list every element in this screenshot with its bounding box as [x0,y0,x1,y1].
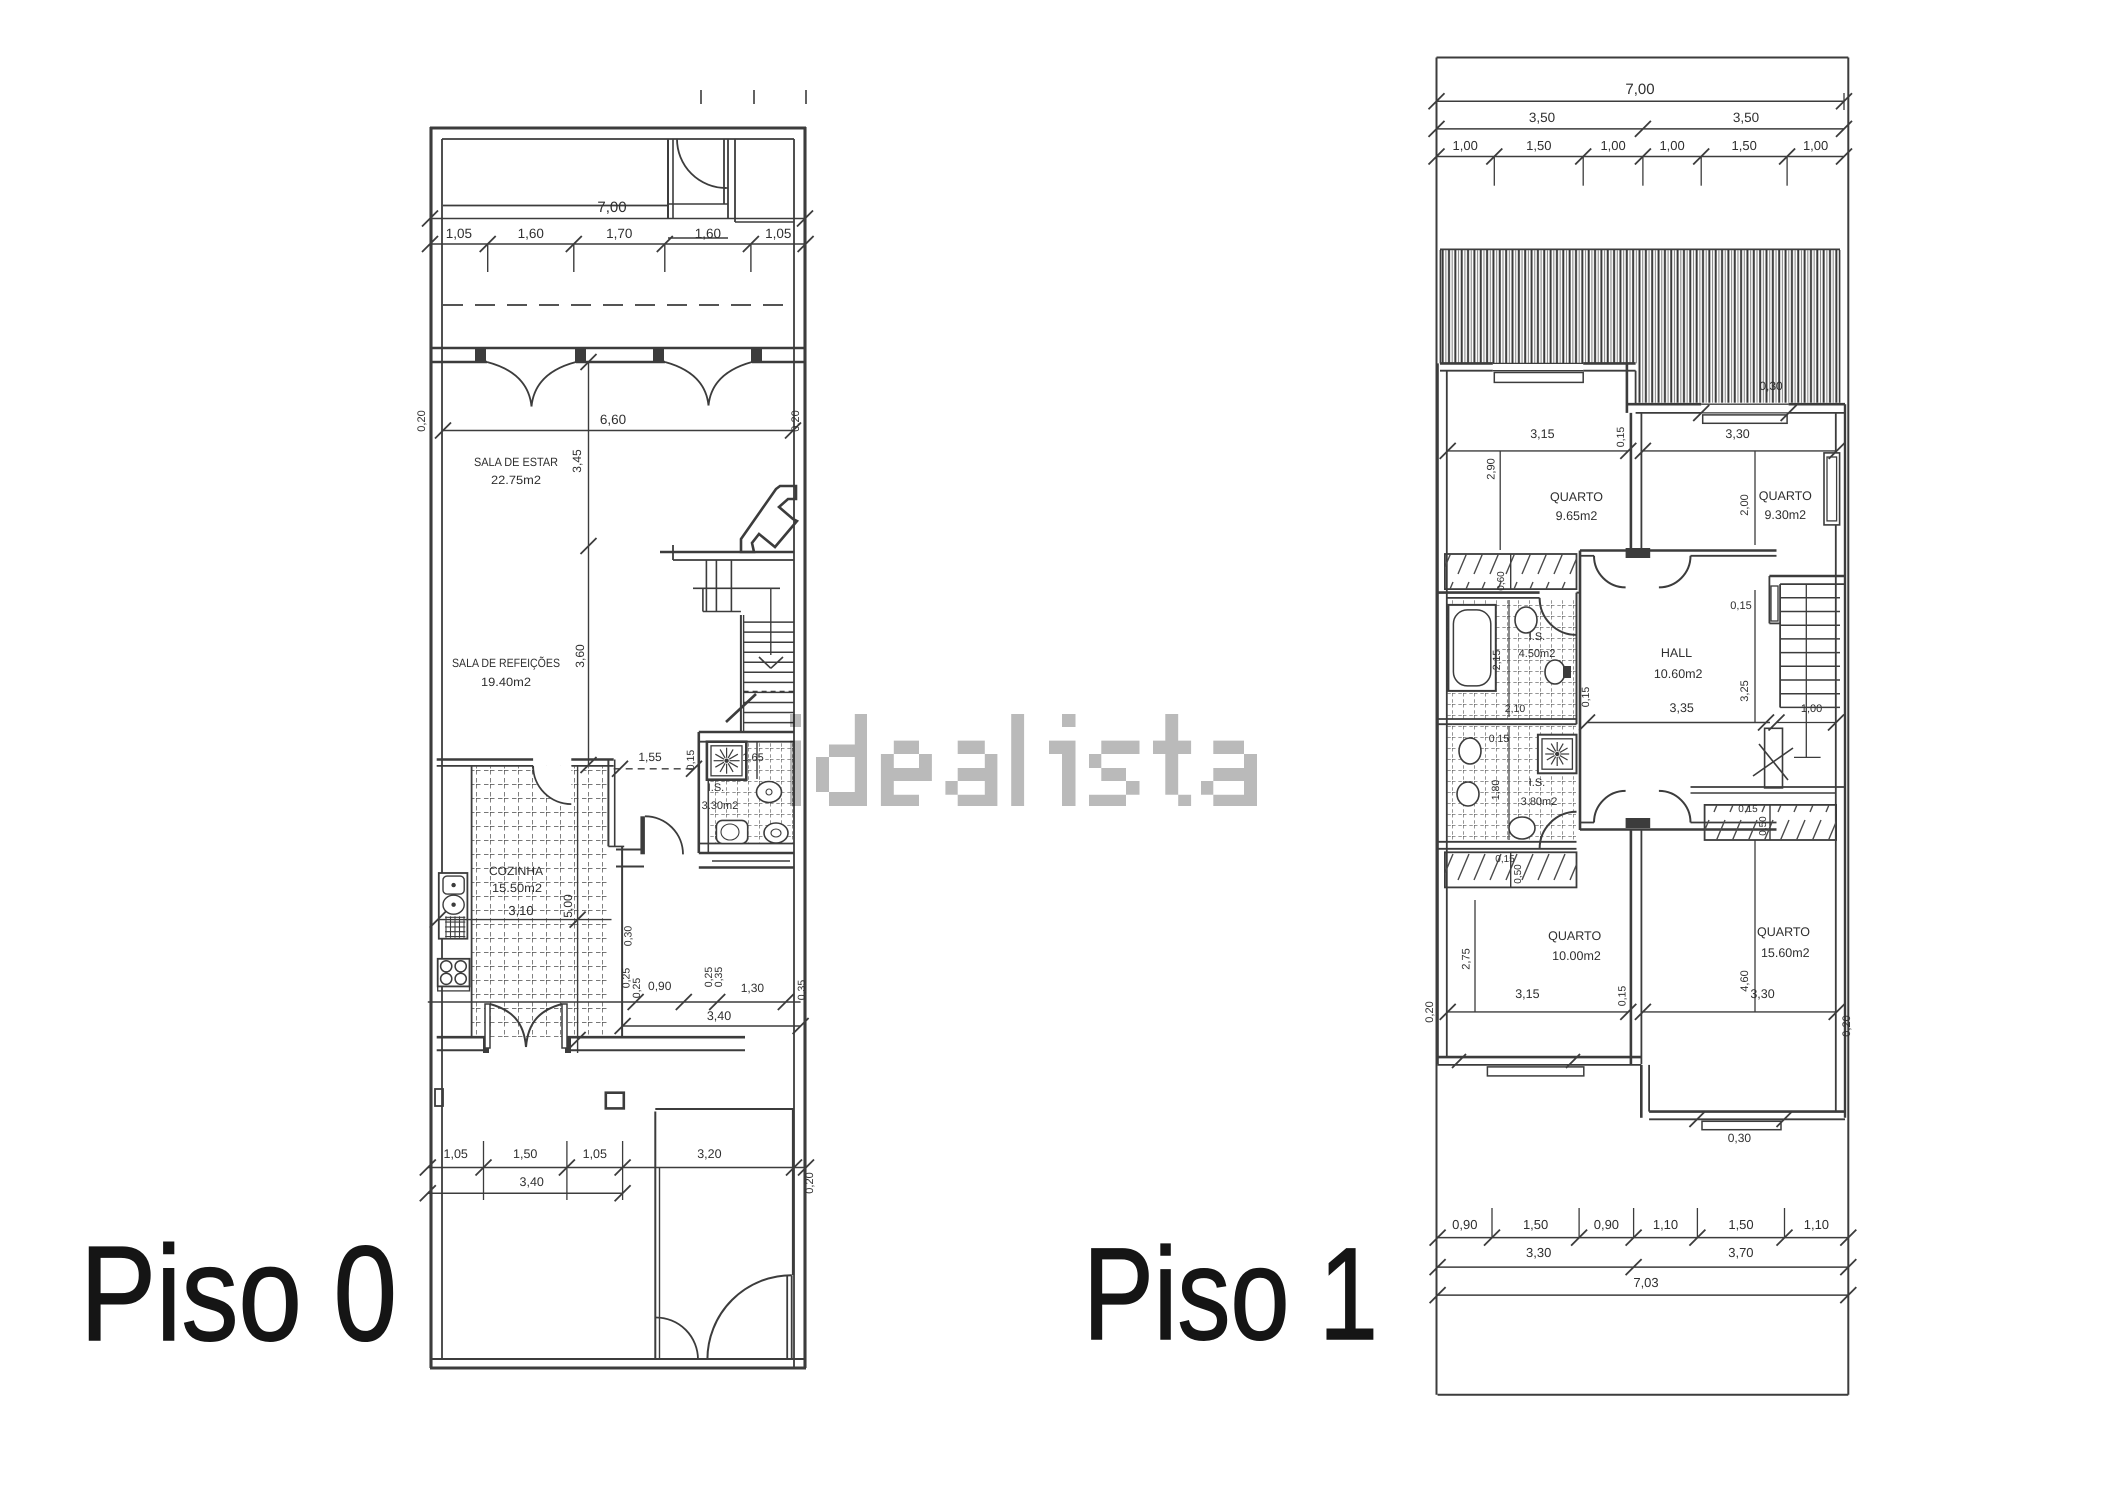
svg-text:0,90: 0,90 [1452,1217,1477,1232]
svg-text:1,80: 1,80 [1490,780,1502,801]
svg-text:9.30m2: 9.30m2 [1764,508,1806,522]
svg-text:3,50: 3,50 [1529,110,1555,125]
svg-text:1,50: 1,50 [1732,138,1757,153]
svg-text:1,00: 1,00 [1453,138,1478,153]
svg-text:1,00: 1,00 [1803,138,1828,153]
svg-text:9.65m2: 9.65m2 [1556,509,1598,523]
svg-text:0,15: 0,15 [1615,427,1627,448]
svg-text:7,03: 7,03 [1633,1275,1658,1290]
svg-text:3.80m2: 3.80m2 [1521,796,1558,808]
svg-text:QUARTO: QUARTO [1550,490,1603,504]
svg-text:Piso 0: Piso 0 [80,1218,397,1369]
svg-text:0,20: 0,20 [804,1172,816,1193]
svg-text:3,45: 3,45 [570,449,584,473]
svg-text:2,00: 2,00 [1739,494,1751,515]
svg-text:4.50m2: 4.50m2 [1519,648,1556,660]
svg-text:SALA DE REFEIÇÕES: SALA DE REFEIÇÕES [452,656,560,670]
svg-text:0,30: 0,30 [623,926,635,947]
svg-text:QUARTO: QUARTO [1548,929,1601,943]
svg-text:1,05: 1,05 [583,1147,607,1161]
svg-text:0,50: 0,50 [1758,816,1769,836]
svg-text:10.60m2: 10.60m2 [1654,667,1703,681]
svg-text:0,20: 0,20 [1841,1015,1853,1036]
svg-text:6,60: 6,60 [600,412,626,427]
svg-text:1,00: 1,00 [1600,138,1625,153]
svg-text:2,75: 2,75 [1461,948,1473,969]
svg-text:HALL: HALL [1661,646,1692,660]
svg-text:1,05: 1,05 [444,1147,468,1161]
svg-text:I.S.: I.S. [708,782,725,794]
svg-text:1,60: 1,60 [695,226,721,241]
svg-text:3.30m2: 3.30m2 [702,800,739,812]
svg-text:0,15: 0,15 [1738,804,1758,815]
svg-text:3,40: 3,40 [707,1009,731,1023]
svg-text:0,15: 0,15 [1730,600,1751,612]
svg-text:2,10: 2,10 [1505,703,1526,715]
svg-text:3,50: 3,50 [1733,110,1759,125]
svg-text:3,60: 3,60 [573,644,587,668]
svg-text:2,15: 2,15 [1491,650,1503,671]
svg-text:0,35: 0,35 [796,980,808,1001]
svg-text:COZINHA: COZINHA [489,864,543,878]
svg-text:2,90: 2,90 [1485,458,1497,479]
svg-text:1,00: 1,00 [1659,138,1684,153]
svg-text:1,50: 1,50 [1523,1217,1548,1232]
svg-text:Piso 1: Piso 1 [1083,1220,1378,1367]
svg-text:1,70: 1,70 [606,226,632,241]
svg-text:3,30: 3,30 [1725,427,1749,441]
svg-text:1,55: 1,55 [638,750,662,764]
svg-text:3,20: 3,20 [697,1147,721,1161]
svg-text:0,30: 0,30 [1728,1131,1752,1145]
svg-text:22.75m2: 22.75m2 [491,473,541,487]
svg-text:0,60: 0,60 [1496,571,1507,591]
svg-text:4,60: 4,60 [1739,970,1751,991]
svg-text:0,50: 0,50 [1513,864,1524,884]
svg-text:0,30: 0,30 [1759,379,1783,393]
svg-text:QUARTO: QUARTO [1759,489,1812,503]
svg-text:1,65: 1,65 [742,752,763,764]
svg-text:3,15: 3,15 [1530,427,1554,441]
svg-text:1,10: 1,10 [1653,1217,1678,1232]
svg-text:7,00: 7,00 [597,199,626,216]
svg-text:1,05: 1,05 [765,226,791,241]
svg-text:I.S.: I.S. [1529,777,1546,789]
svg-text:3,30: 3,30 [1526,1245,1551,1260]
svg-text:10.00m2: 10.00m2 [1552,949,1601,963]
svg-text:QUARTO: QUARTO [1757,925,1810,939]
svg-text:1,10: 1,10 [1804,1217,1829,1232]
svg-text:1,50: 1,50 [1526,138,1551,153]
svg-text:1,30: 1,30 [741,981,765,995]
svg-text:0,15: 0,15 [1580,687,1592,708]
svg-text:0,90: 0,90 [648,979,672,993]
svg-text:3,40: 3,40 [520,1175,544,1189]
svg-text:0,20: 0,20 [790,410,802,431]
svg-text:0,15: 0,15 [1617,986,1629,1007]
svg-text:3,30: 3,30 [1750,987,1774,1001]
svg-text:I.S.: I.S. [1529,631,1546,643]
svg-text:15.60m2: 15.60m2 [1761,946,1810,960]
svg-text:1,50: 1,50 [1728,1217,1753,1232]
svg-text:0,20: 0,20 [416,410,428,431]
svg-text:3,25: 3,25 [1739,680,1751,701]
svg-text:0,15: 0,15 [1495,854,1515,865]
svg-text:0,15: 0,15 [1489,733,1510,745]
svg-text:0,25: 0,25 [631,978,643,999]
svg-text:1,60: 1,60 [518,226,544,241]
svg-text:3,10: 3,10 [508,903,533,918]
svg-text:5,00: 5,00 [561,894,575,918]
svg-text:0,20: 0,20 [1424,1001,1436,1022]
svg-text:3,70: 3,70 [1728,1245,1753,1260]
svg-text:0,15: 0,15 [685,750,697,771]
svg-text:1,00: 1,00 [1801,703,1822,715]
svg-text:19.40m2: 19.40m2 [481,675,531,689]
svg-text:3,15: 3,15 [1515,987,1539,1001]
svg-text:1,05: 1,05 [446,226,472,241]
svg-text:3,35: 3,35 [1670,701,1694,715]
svg-text:SALA DE ESTAR: SALA DE ESTAR [474,455,558,469]
svg-text:7,00: 7,00 [1625,81,1654,98]
svg-text:1,50: 1,50 [513,1147,537,1161]
svg-text:0,35: 0,35 [713,967,725,988]
svg-text:0,90: 0,90 [1594,1217,1619,1232]
svg-text:15.50m2: 15.50m2 [492,881,542,895]
